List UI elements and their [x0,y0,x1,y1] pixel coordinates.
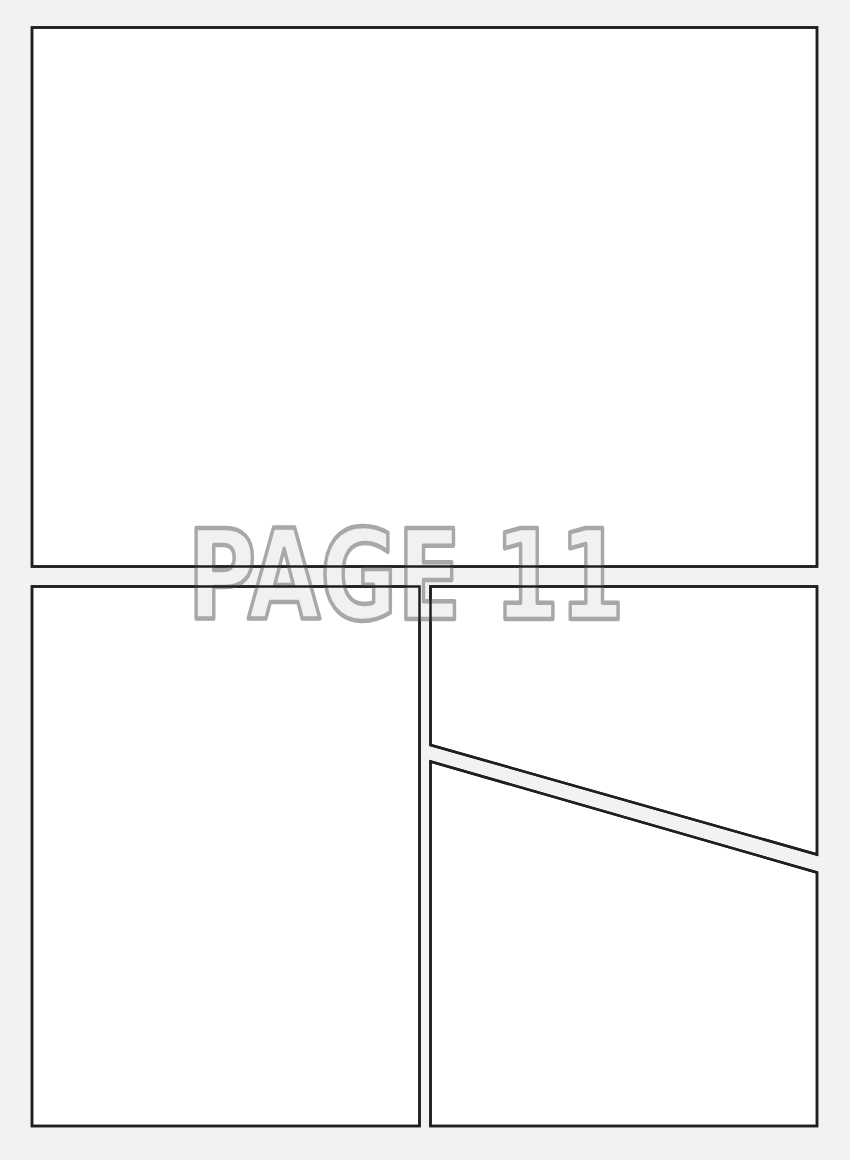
comic-page-template: PAGE 11 [0,0,850,1160]
page-title: PAGE 11 [188,504,625,648]
comic-page-canvas: PAGE 11 [0,0,850,1160]
panel-2 [32,587,420,1127]
panel-1 [32,28,817,567]
